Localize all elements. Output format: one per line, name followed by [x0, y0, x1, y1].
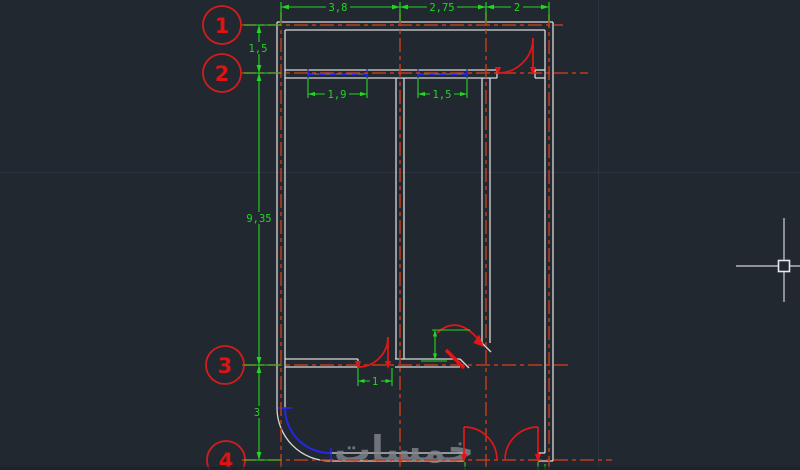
dim-label-top-2: 2,75	[429, 2, 454, 14]
dim-label-left-1: 1,5	[249, 43, 268, 55]
bubble-1-label: 1	[215, 14, 230, 38]
dim-label-top-3: 2	[514, 2, 520, 14]
dim-label-left-2: 9,35	[246, 213, 271, 225]
bubble-2-label: 2	[215, 62, 230, 86]
bubble-3-label: 3	[218, 354, 233, 378]
dim-label-door: 1	[372, 376, 378, 388]
dim-label-top-1: 3,8	[329, 2, 348, 14]
drawing-viewport[interactable]: خمسات 1 2 3 4	[0, 0, 800, 470]
pickbox	[779, 261, 790, 272]
dim-label-window-2: 1,5	[433, 89, 452, 101]
watermark-text: خمسات	[334, 428, 474, 470]
drawing-canvas[interactable]: خمسات 1 2 3 4	[0, 0, 800, 470]
dim-label-window-1: 1,9	[328, 89, 347, 101]
dim-label-left-3: 3	[254, 407, 260, 419]
bottom-edge-shade	[0, 467, 800, 470]
